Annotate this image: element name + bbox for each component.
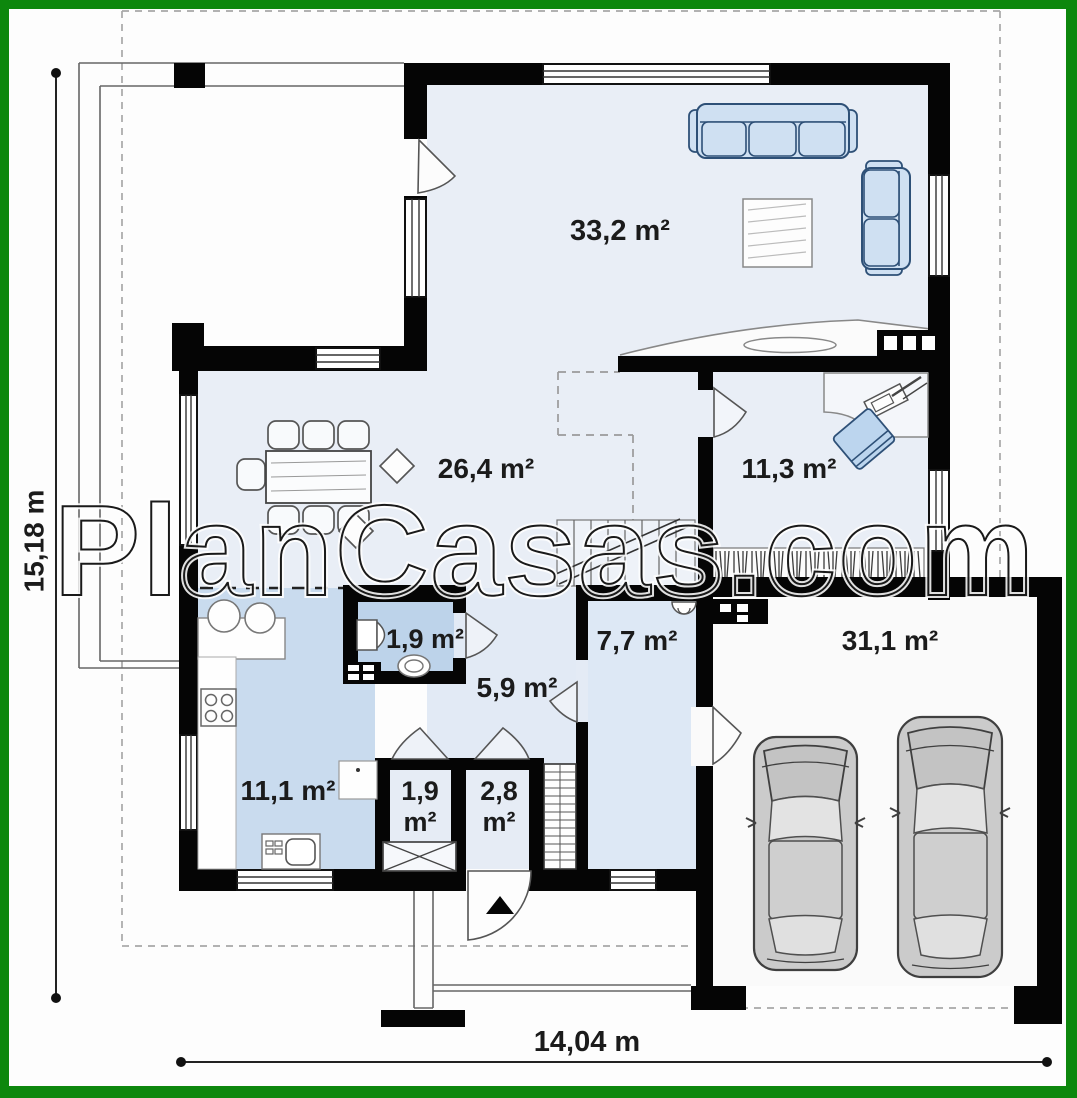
svg-text:14,04 m: 14,04 m [534,1026,640,1058]
svg-text:15,18 m: 15,18 m [18,490,49,593]
svg-text:31,1 m²: 31,1 m² [842,625,939,656]
svg-text:m²: m² [404,807,437,837]
svg-text:7,7 m²: 7,7 m² [597,625,678,656]
svg-text:33,2 m²: 33,2 m² [570,215,670,247]
svg-text:PlanCasas.com: PlanCasas.com [54,479,1036,623]
svg-text:m²: m² [483,807,516,837]
svg-text:5,9 m²: 5,9 m² [477,672,558,703]
svg-text:11,1 m²: 11,1 m² [241,775,336,806]
svg-text:1,9 m²: 1,9 m² [386,624,464,654]
svg-text:1,9: 1,9 [401,776,439,806]
svg-text:2,8: 2,8 [480,776,518,806]
